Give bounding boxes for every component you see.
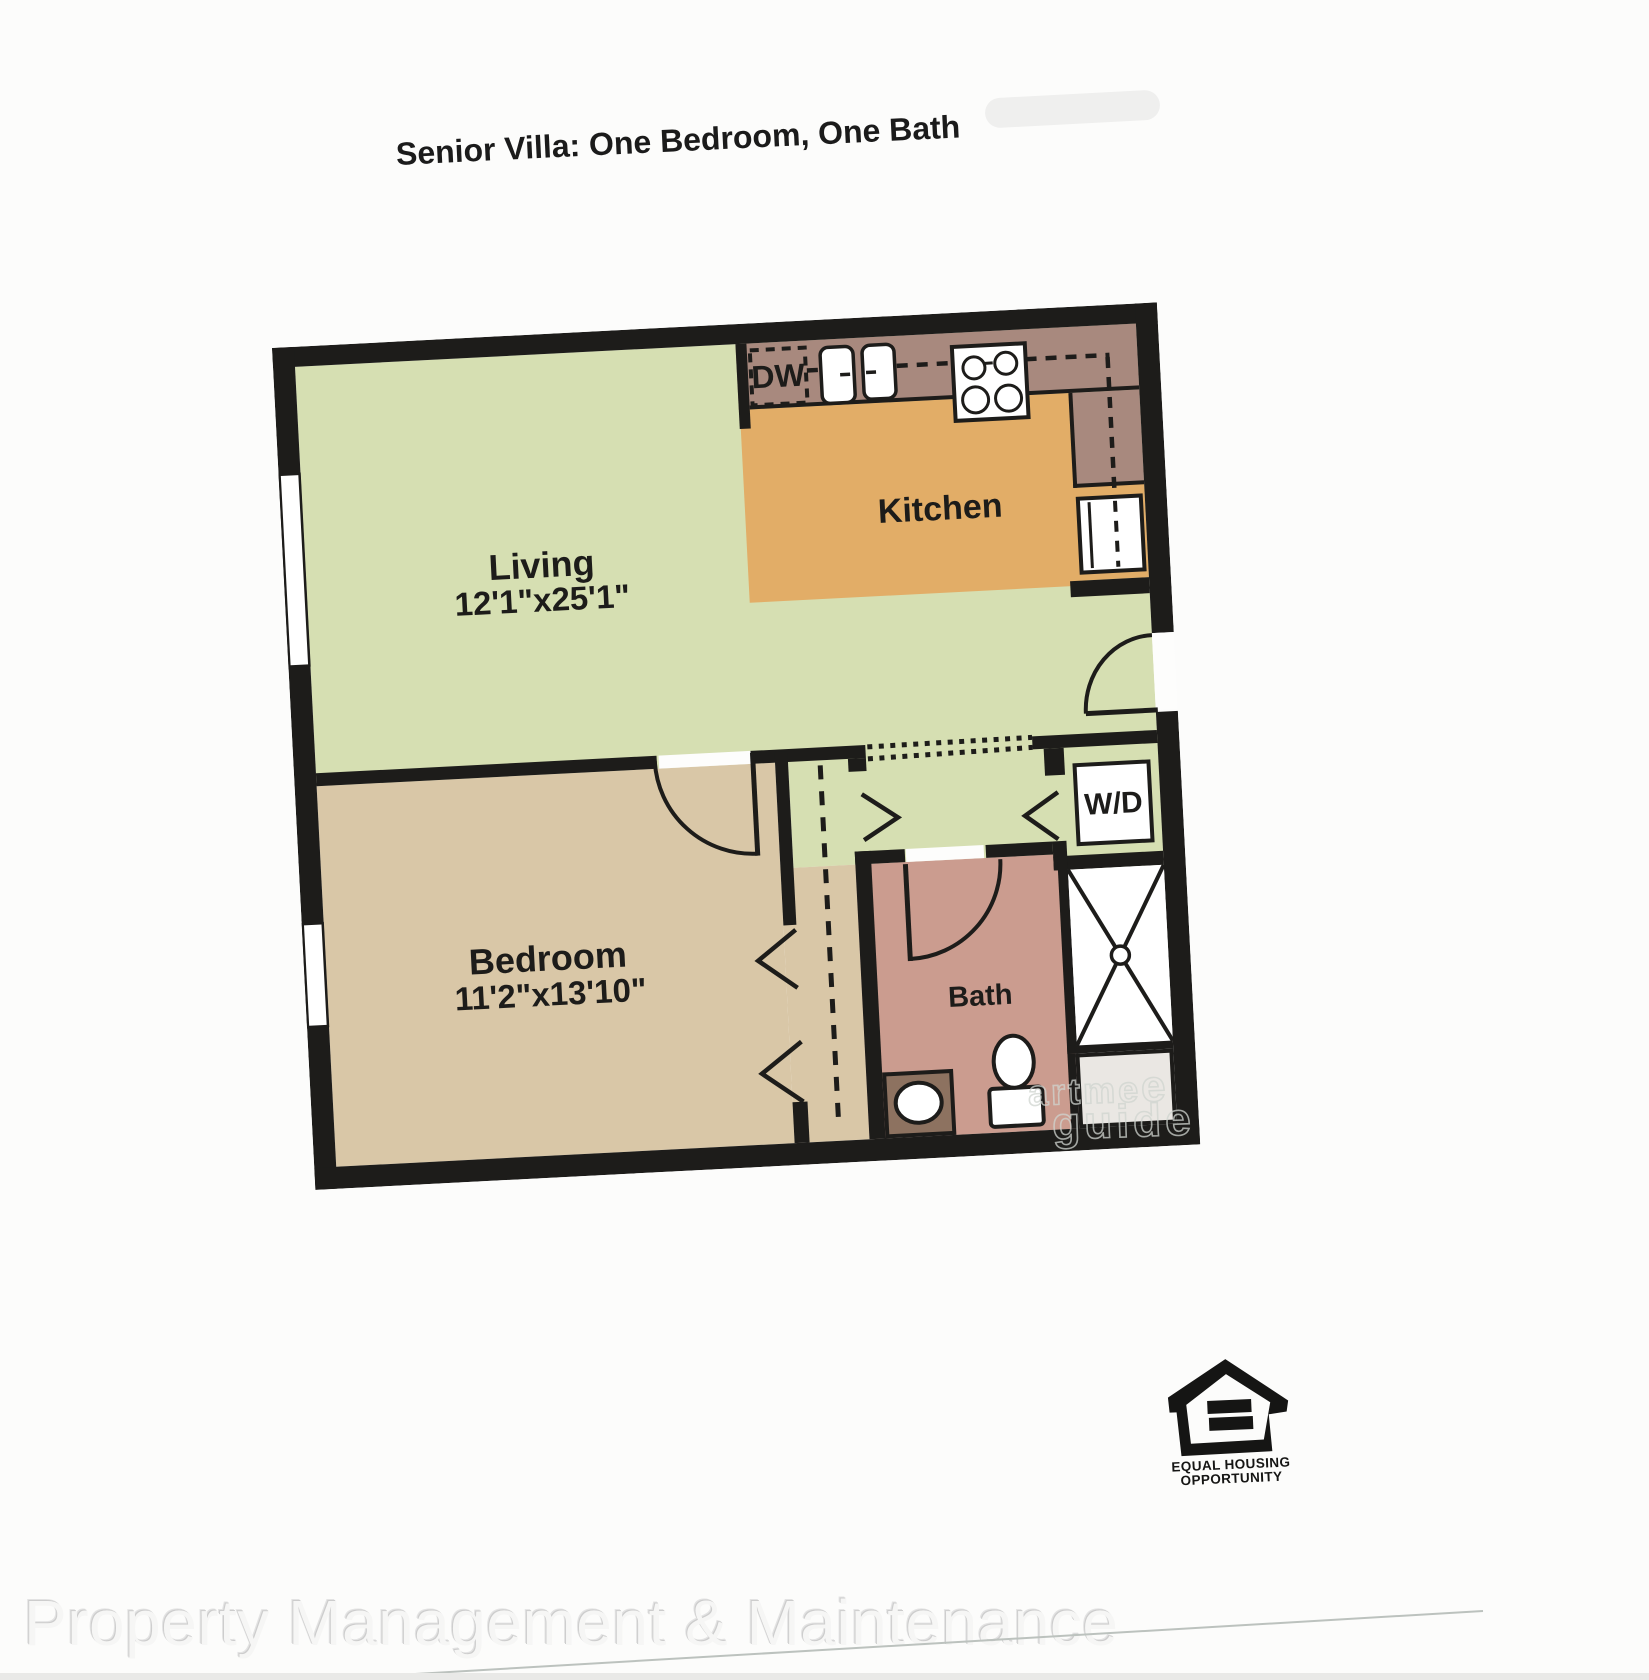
svg-text:W/D: W/D — [1084, 786, 1144, 822]
svg-text:DW: DW — [751, 357, 807, 396]
svg-text:Kitchen: Kitchen — [877, 487, 1003, 531]
svg-text:Bath: Bath — [947, 979, 1013, 1014]
svg-text:OPPORTUNITY: OPPORTUNITY — [1180, 1469, 1282, 1488]
